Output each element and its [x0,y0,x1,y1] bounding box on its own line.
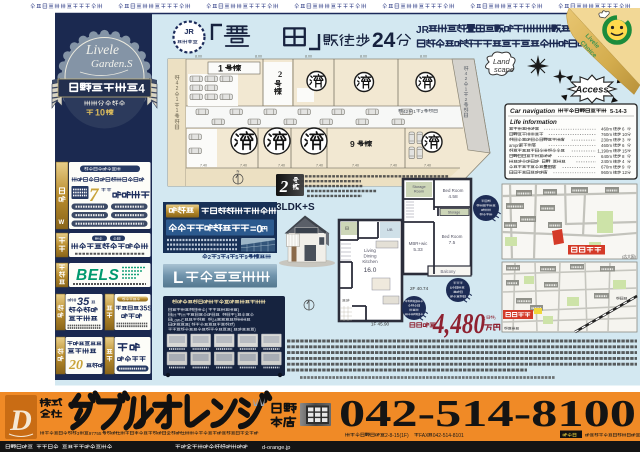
svg-text:1F 45.90: 1F 45.90 [371,322,390,327]
svg-text:Life information: Life information [510,119,557,126]
svg-text:4,480: 4,480 [432,308,485,340]
svg-text:15: 15 [622,148,627,153]
svg-text:7.40: 7.40 [424,164,431,168]
svg-text:1,190m: 1,190m [597,148,612,153]
svg-text:2: 2 [421,109,424,115]
svg-text:7: 7 [89,185,100,206]
svg-text:10: 10 [95,108,105,118]
svg-text:042-514-8100: 042-514-8100 [339,393,636,435]
svg-text:240m: 240m [601,159,612,164]
svg-text:3LDK+S: 3LDK+S [276,202,315,213]
svg-text:L: L [173,268,183,287]
svg-text:2: 2 [279,177,289,196]
svg-text:1: 1 [176,108,179,114]
svg-text:8.00: 8.00 [420,55,427,59]
svg-text:24: 24 [212,317,217,322]
svg-text:7.40: 7.40 [316,164,323,168]
svg-text:Storage: Storage [412,185,425,189]
svg-text:960m: 960m [601,170,612,175]
svg-text:BELS: BELS [76,267,120,284]
svg-text:d-orange.jp: d-orange.jp [262,445,290,451]
svg-text:8.00: 8.00 [360,55,367,59]
svg-text:7.40: 7.40 [240,164,247,168]
svg-text:1: 1 [218,64,223,74]
svg-text:2: 2 [465,76,468,82]
svg-text:scape: scape [494,65,514,74]
svg-text:FAX: FAX [419,433,429,439]
svg-text:Bed Room: Bed Room [442,234,463,239]
svg-text:760m: 760m [601,132,612,137]
svg-text:Livele: Livele [85,42,119,57]
svg-text:2: 2 [278,69,282,79]
svg-text:4: 4 [138,84,145,96]
svg-text:24: 24 [372,29,396,52]
svg-text:JR: JR [416,25,430,36]
svg-text:2F 40.74: 2F 40.74 [410,286,429,291]
svg-text:Dining: Dining [363,254,376,259]
svg-text:8.00: 8.00 [195,55,202,59]
svg-text:Low-E: Low-E [172,317,184,322]
svg-text:8.00: 8.00 [305,55,312,59]
svg-text:Bed Room: Bed Room [443,188,464,193]
svg-text:W: W [59,220,65,226]
svg-text:7.40: 7.40 [352,164,359,168]
svg-text:1: 1 [465,87,468,93]
svg-text:Living: Living [364,248,376,253]
svg-text:7.5: 7.5 [449,240,456,246]
svg-text:N: N [237,169,240,174]
svg-text:2: 2 [208,255,211,261]
svg-text:Kitchen: Kitchen [362,259,378,264]
svg-text:3: 3 [77,431,80,436]
svg-text:16.0: 16.0 [364,267,377,274]
svg-text:042-514-8101: 042-514-8101 [433,433,464,439]
svg-text:Room: Room [414,190,424,194]
svg-text:Access: Access [574,85,608,96]
svg-text:Balcony: Balcony [441,269,457,274]
svg-text:35S: 35S [140,306,153,313]
svg-text:460m: 460m [601,127,612,132]
svg-text:97755: 97755 [89,431,102,436]
svg-text:4.58: 4.58 [448,194,458,200]
svg-text:1: 1 [413,109,416,115]
svg-text:6: 6 [450,286,452,290]
svg-text:UB: UB [387,227,393,232]
svg-text:Garden.S: Garden.S [91,58,133,70]
svg-text:460m: 460m [601,143,612,148]
svg-text:8.00: 8.00 [255,55,262,59]
svg-text:7.40: 7.40 [390,164,397,168]
svg-text:1: 1 [176,97,179,103]
svg-text:2: 2 [465,97,468,103]
svg-text:9: 9 [350,139,355,149]
svg-text:10: 10 [622,132,627,137]
svg-text:640m: 640m [601,154,612,159]
svg-text:Car navigation: Car navigation [510,108,555,115]
svg-text:4: 4 [465,71,468,77]
svg-text:5.33: 5.33 [413,247,423,253]
svg-text:2-8-15(1F): 2-8-15(1F) [385,433,409,439]
svg-text:5-14-3: 5-14-3 [610,109,628,115]
svg-text:20: 20 [68,358,83,373]
svg-text:7.40: 7.40 [200,164,207,168]
svg-text:JR: JR [184,27,194,36]
svg-text:35: 35 [77,296,90,308]
svg-text:12: 12 [622,170,627,175]
svg-text:D: D [9,404,32,437]
svg-text:2: 2 [176,86,179,92]
svg-text:Storage: Storage [448,211,461,215]
svg-text:7.40: 7.40 [278,164,285,168]
svg-text:MBR+wic: MBR+wic [409,241,428,246]
svg-text:=0: =0 [250,224,263,236]
svg-text:670m: 670m [601,165,612,170]
svg-text:(広大図): (広大図) [622,254,637,259]
svg-text:42: 42 [403,109,409,115]
svg-text:230m: 230m [601,137,612,142]
